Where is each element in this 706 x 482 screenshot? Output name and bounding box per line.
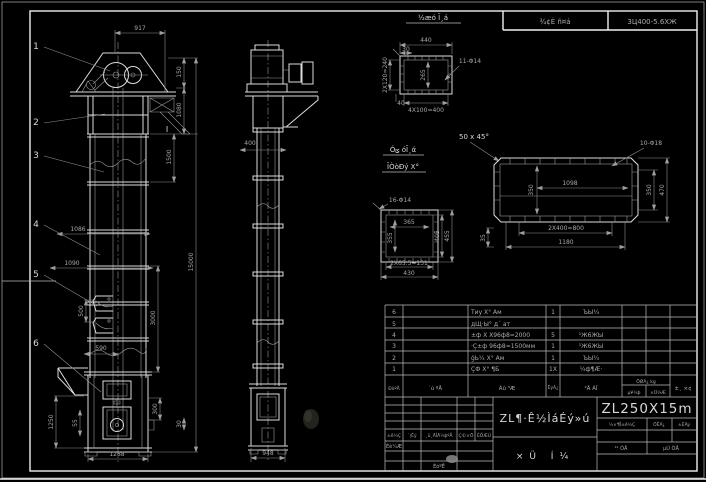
dim-30: 30 xyxy=(176,420,183,428)
dim-440: 440 xyxy=(420,37,432,44)
balloon-6: 6 xyxy=(33,339,39,349)
rev-date-label: ÈÕÆÚ xyxy=(477,431,491,439)
sheets-label: ¹² ÕÅ xyxy=(615,445,629,452)
section-mark-label: I xyxy=(166,125,168,134)
dim-35: 35 xyxy=(480,234,487,242)
dim-1090: 1090 xyxy=(64,260,79,267)
balloon-3: 3 xyxy=(33,151,39,161)
rev-count-label: ´¦Êý xyxy=(407,431,417,439)
bom-row-4: 4 ±ф Х Х96ф8=2000 5 ¹Ж6ЖЫ xyxy=(392,332,603,339)
bom-row-3: 3 ·Ç±ф 96ф8=1500мм 1 ¹Ж6ЖЫ xyxy=(392,343,603,350)
rev-mark-label: ±ê¼Ç xyxy=(387,432,401,439)
bom-name: ±ф Х Х96ф8=2000 xyxy=(471,332,530,339)
section-mid-flange: Óݶ óĪ¸ά ĪÒòĐý Х° 16-Φ14 365 355 405 455 … xyxy=(373,145,454,280)
rev-sign-label: Ç©×Ö xyxy=(459,432,474,439)
bom-no: 2 xyxy=(392,355,396,362)
bom-table: ÐòºÅ ´ú ºÅ Ãû ³Æ ÊýÁ¿ ²Ä ÁÏ ÖØÁ¿ kg µ¥¼þ… xyxy=(385,305,697,471)
dim-1086: 1086 xyxy=(70,226,85,233)
dim-455: 455 xyxy=(444,230,451,242)
dim-470: 470 xyxy=(659,184,666,196)
bom-name: ÇФ Х° ¶Б xyxy=(471,366,499,373)
front-view: I xyxy=(58,42,190,462)
section-mid-caption-1: Óݶ óĪ¸ά xyxy=(390,145,417,154)
bom-col-qty: ÊýÁ¿ xyxy=(548,383,560,391)
side-view: 400 948 xyxy=(240,40,319,462)
bom-col-unit: µ¥¼þ xyxy=(628,390,641,396)
bom-col-note: ±¸ ×¢ xyxy=(674,386,691,392)
dim-350-right: 350 xyxy=(646,184,653,196)
balloon-2: 2 xyxy=(33,118,39,128)
rev-doc-label: ¸ü¸ÄÎÄ¼þºÅ xyxy=(425,432,453,439)
bom-mat: ¹Ж6ЖЫ xyxy=(579,332,603,339)
section-top-title: ½æó Ī¸á xyxy=(418,13,448,22)
bom-name: Тиу Х° Ам xyxy=(470,309,502,316)
bom-qty: 1 xyxy=(551,343,555,350)
bom-name: ·Ç±ф 96ф8=1500мм xyxy=(471,343,535,350)
dim-2x400: 2X400=800 xyxy=(548,225,584,232)
bom-row-2: 2 ģЬ¼ Х° Ам 1 ЪЫ¼ xyxy=(392,355,599,362)
bom-col-no: ÐòºÅ xyxy=(388,385,400,392)
dim-1500: 1500 xyxy=(166,149,173,164)
model-number: ZL250X15m xyxy=(601,401,692,417)
section-top-flange: ½æó Ī¸á 440 30 2X120=240 40 265 11-Φ14 4… xyxy=(382,13,481,114)
dim-430: 430 xyxy=(403,270,415,277)
dim-55: 55 xyxy=(72,419,79,427)
design-label: Éè¼Æ xyxy=(386,442,402,450)
bom-no: 5 xyxy=(392,321,396,328)
bom-col-code: ´ú ºÅ xyxy=(428,385,443,392)
dim-400: 400 xyxy=(244,140,256,147)
dim-240: 2X120=240 xyxy=(382,57,389,93)
bom-col-name: Ãû ³Æ xyxy=(499,385,516,392)
dim-1180: 1180 xyxy=(558,239,573,246)
cad-canvas: ¾¢Ė ñ¤á 3Ц400-5.6ХЖ I xyxy=(0,0,706,482)
dim-300: 300 xyxy=(152,403,159,415)
scale-label: ±ÈÀý xyxy=(678,420,690,428)
bom-qty: 1X xyxy=(549,366,557,373)
dim-150: 150 xyxy=(176,66,183,78)
dim-2x65: 2X65.5=131 xyxy=(390,260,428,267)
section-right: 50 x 45° 10-Φ18 1098 350 350 470 2X400=8… xyxy=(459,133,670,250)
bom-row-1: 1 ÇФ Х° ¶Б 1X ¼ф¶Æ· xyxy=(392,366,602,373)
dim-405: 405 xyxy=(434,230,441,242)
bom-name: дЩ·Ы° д´ ат xyxy=(471,321,511,328)
holes-16-d14: 16-Φ14 xyxy=(389,197,411,204)
stamp-mark xyxy=(446,455,458,463)
dim-917: 917 xyxy=(134,25,146,32)
balloon-callouts: 1 2 3 4 5 6 xyxy=(33,42,110,392)
boot-section xyxy=(58,368,154,456)
drawing-title: ZL¶·Ê½ÌáÉý»ú xyxy=(500,412,591,425)
bom-mat: ЪЫ¼ xyxy=(583,309,599,316)
bom-qty: 1 xyxy=(551,355,555,362)
bom-no: 6 xyxy=(392,309,396,316)
balloon-1: 1 xyxy=(33,42,39,52)
holes-11-d14: 11-Φ14 xyxy=(459,58,481,65)
dim-1080: 1080 xyxy=(176,102,183,117)
sheet-no-label: µÚ ÕÅ xyxy=(663,445,679,452)
bom-mat: ЪЫ¼ xyxy=(583,355,599,362)
holes-10-d18: 10-Φ18 xyxy=(640,140,662,147)
title-block: ±ê¼Ç ´¦Êý ¸ü¸ÄÎÄ¼þºÅ Ç©×Ö ÈÕÆÚ Éè¼Æ ÉóºË… xyxy=(385,397,697,471)
drawing-sheet: ¾¢Ė ñ¤á 3Ц400-5.6ХЖ I xyxy=(0,0,706,482)
mass-label: ÖÊÁ¿ xyxy=(653,420,665,428)
drawing-number: 3Ц400-5.6ХЖ xyxy=(627,18,677,26)
bom-col-weight: ÖØÁ¿ kg xyxy=(636,378,656,385)
dim-1098: 1098 xyxy=(562,180,577,187)
stage-label: ½×¶Î±ê¼Ç xyxy=(609,421,635,428)
header-view-label: ¾¢Ė ñ¤á xyxy=(539,17,570,26)
smudge-mark-core xyxy=(304,410,312,422)
bom-row-5: 5 дЩ·Ы° д´ ат xyxy=(392,321,510,328)
bom-mat: ¼ф¶Æ· xyxy=(580,366,603,373)
balloon-4: 4 xyxy=(33,220,39,230)
bom-row-6: 6 Тиу Х° Ам 1 ЪЫ¼ xyxy=(392,309,599,316)
dim-350-left: 350 xyxy=(528,184,535,196)
dim-500: 500 xyxy=(78,305,85,317)
balloon-5: 5 xyxy=(33,270,39,280)
bom-col-mat: ²Ä ÁÏ xyxy=(584,385,597,392)
dim-1250: 1250 xyxy=(48,414,55,429)
check-label: ÉóºË xyxy=(433,462,445,470)
dim-355: 355 xyxy=(387,232,394,244)
dim-30-top: 30 xyxy=(402,46,410,53)
bom-col-total: ×Ü¼Æ xyxy=(650,389,666,396)
bom-no: 3 xyxy=(392,343,396,350)
dim-265: 265 xyxy=(420,69,427,81)
bom-no: 1 xyxy=(392,366,396,373)
dim-15000: 15000 xyxy=(188,252,195,271)
chamfer-note: 50 x 45° xyxy=(459,133,489,141)
bom-mat: ¹Ж6ЖЫ xyxy=(579,343,603,350)
dim-3000: 3000 xyxy=(150,310,157,325)
bom-name: ģЬ¼ Х° Ам xyxy=(471,355,504,362)
bom-qty: 1 xyxy=(551,309,555,316)
bom-no: 4 xyxy=(392,332,396,339)
dim-365: 365 xyxy=(403,219,415,226)
dim-4x100: 4X100=400 xyxy=(408,107,444,114)
section-mid-caption-2: ĪÒòĐý Х° xyxy=(387,162,419,171)
dim-590: 590 xyxy=(95,345,107,352)
bom-qty: 5 xyxy=(551,332,555,339)
dim-948: 948 xyxy=(262,450,274,457)
drawing-subtitle: ×Ü Í¼ xyxy=(516,450,574,462)
dim-1288: 1288 xyxy=(109,451,124,458)
